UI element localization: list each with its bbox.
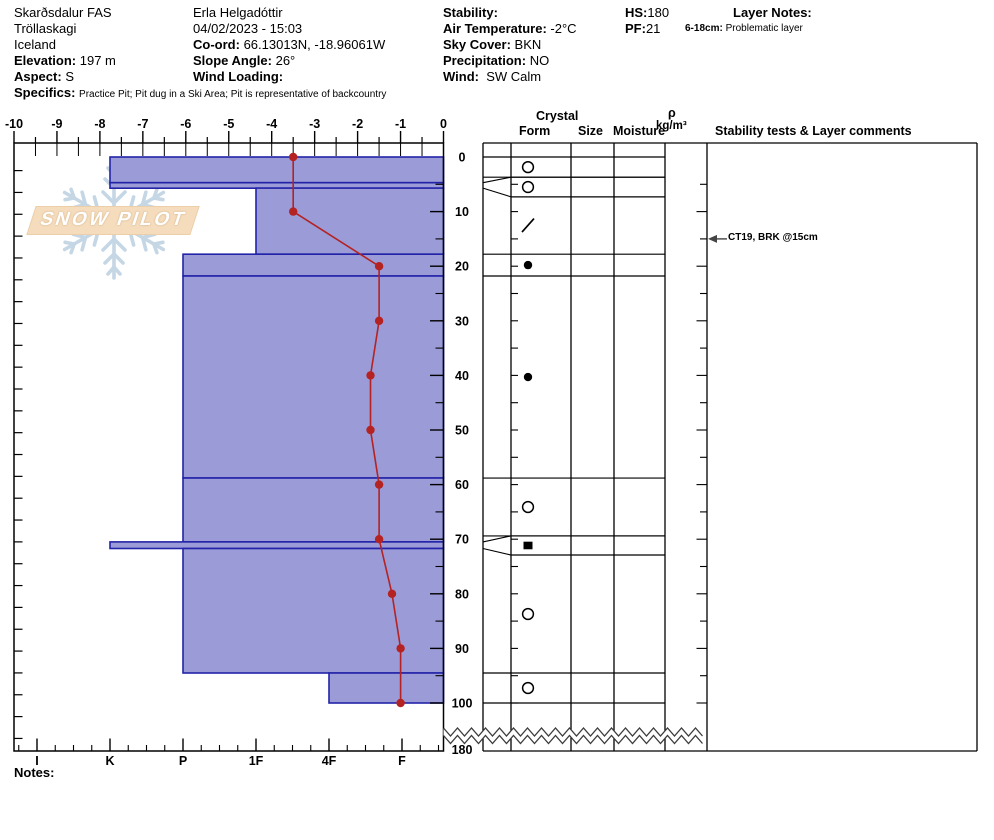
hardness-tick-label: 4F <box>322 754 337 768</box>
wind-row: Wind: SW Calm <box>443 69 577 85</box>
depth-tick-label: 70 <box>455 533 469 547</box>
depth-tick-label: 60 <box>455 478 469 492</box>
arrow-head-icon <box>708 235 717 243</box>
stability-tests-header: Stability tests & Layer comments <box>715 124 912 138</box>
hardness-tick-label: F <box>398 754 406 768</box>
layer-bar <box>183 276 444 478</box>
temperature-point <box>396 644 404 652</box>
temp-tick-label: -9 <box>51 117 62 131</box>
size-column-header: Size <box>578 124 603 138</box>
hardness-tick-label: K <box>105 754 114 768</box>
depth-tick-label: 30 <box>455 314 469 328</box>
grain-circle-open-icon <box>523 609 534 620</box>
layer-bar <box>110 542 444 549</box>
depth-tick-label: 0 <box>459 151 466 165</box>
temperature-point <box>375 317 383 325</box>
problem-layer-bracket <box>483 536 511 555</box>
density-units-header: kg/m³ <box>656 120 687 132</box>
table-depth-ticks <box>511 184 707 703</box>
left-axis-ticks <box>14 171 23 739</box>
annotation-arrow <box>708 235 727 243</box>
hs-row: HS:180 <box>625 5 669 21</box>
precipitation-row: Precipitation: NO <box>443 53 577 69</box>
header-hs-pf-block: HS:180 PF:21 <box>625 5 669 37</box>
depth-tick-label: 10 <box>455 205 469 219</box>
layer-bar <box>183 549 444 674</box>
grain-slash-icon <box>522 219 534 233</box>
depth-tick-label: 20 <box>455 260 469 274</box>
temperature-point <box>289 153 297 161</box>
temp-tick-label: -8 <box>94 117 105 131</box>
specifics-row: Specifics: Practice Pit; Pit dug in a Sk… <box>14 85 386 101</box>
slope-angle-row: Slope Angle: 26° <box>193 53 385 69</box>
temp-tick-label: -6 <box>180 117 191 131</box>
hardness-tick-label: P <box>179 754 187 768</box>
grain-circle-filled-icon <box>524 261 532 269</box>
form-column-header: Form <box>519 124 550 138</box>
depth-break-label: 180 <box>452 743 473 757</box>
grain-circle-open-icon <box>523 683 534 694</box>
layer-bar <box>183 254 444 276</box>
bracket-upper-line <box>483 177 511 182</box>
temperature-point <box>366 371 374 379</box>
layer-bar <box>256 188 444 254</box>
problem-layer-bracket <box>483 177 511 197</box>
depth-tick-label: 90 <box>455 642 469 656</box>
pit-datetime: 04/02/2023 - 15:03 <box>193 21 385 37</box>
grain-form-symbols <box>522 162 534 694</box>
stability-row: Stability: <box>443 5 577 21</box>
header-observer-block: Erla Helgadóttir 04/02/2023 - 15:03 Co-o… <box>193 5 385 85</box>
temperature-point <box>388 590 396 598</box>
notes-label: Notes: <box>14 765 54 780</box>
grain-square-filled-icon <box>524 542 533 550</box>
hardness-axis: IKP1F4FF <box>19 739 439 769</box>
grain-circle-open-icon <box>523 162 534 173</box>
bracket-lower-line <box>483 188 511 197</box>
hardness-profile-bars <box>110 157 444 703</box>
temp-tick-label: -7 <box>137 117 148 131</box>
temperature-point <box>396 699 404 707</box>
layer-note-row: 6-18cm: Problematic layer <box>685 21 812 37</box>
bracket-upper-line <box>483 536 511 542</box>
depth-tick-label: 100 <box>452 697 473 711</box>
temp-tick-label: -5 <box>223 117 234 131</box>
crystal-header: Crystal <box>536 109 578 123</box>
sky-cover-row: Sky Cover: BKN <box>443 37 577 53</box>
grain-circle-open-icon <box>523 502 534 513</box>
density-header: ρ <box>668 106 676 120</box>
pf-row: PF:21 <box>625 21 669 37</box>
temperature-point <box>375 535 383 543</box>
layer-bar <box>329 673 444 703</box>
temperature-point <box>289 207 297 215</box>
depth-tick-label: 50 <box>455 424 469 438</box>
temperature-point <box>375 480 383 488</box>
depth-tick-label: 40 <box>455 369 469 383</box>
grain-circle-filled-icon <box>524 373 532 381</box>
hardness-tick-label: 1F <box>249 754 264 768</box>
temperature-axis: -10-9-8-7-6-5-4-3-2-10 <box>5 117 447 156</box>
header-layer-notes-block: Layer Notes: 6-18cm: Problematic layer <box>685 5 812 37</box>
grain-circle-open-icon <box>523 182 534 193</box>
temp-tick-label: 0 <box>440 117 447 131</box>
temp-tick-label: -2 <box>352 117 363 131</box>
temp-tick-label: -1 <box>395 117 406 131</box>
layer-bar <box>183 478 444 542</box>
observer-name: Erla Helgadóttir <box>193 5 385 21</box>
snowpilot-logo-text: SNOW PILOT <box>28 207 198 233</box>
layer-bar <box>110 157 444 183</box>
header-weather-block: Stability: Air Temperature: -2°C Sky Cov… <box>443 5 577 85</box>
temp-tick-label: -10 <box>5 117 23 131</box>
coordinates-row: Co-ord: 66.13013N, -18.96061W <box>193 37 385 53</box>
temp-tick-label: -4 <box>266 117 277 131</box>
stability-test-annotation: CT19, BRK @15cm <box>728 232 818 243</box>
snowpilot-logo-badge: SNOW PILOT <box>26 206 199 235</box>
bracket-lower-line <box>483 548 511 555</box>
air-temp-row: Air Temperature: -2°C <box>443 21 577 37</box>
temp-tick-label: -3 <box>309 117 320 131</box>
temperature-point <box>375 262 383 270</box>
temperature-point <box>366 426 374 434</box>
depth-tick-label: 80 <box>455 587 469 601</box>
layer-notes-title: Layer Notes: <box>685 5 812 21</box>
wind-loading-row: Wind Loading: <box>193 69 385 85</box>
